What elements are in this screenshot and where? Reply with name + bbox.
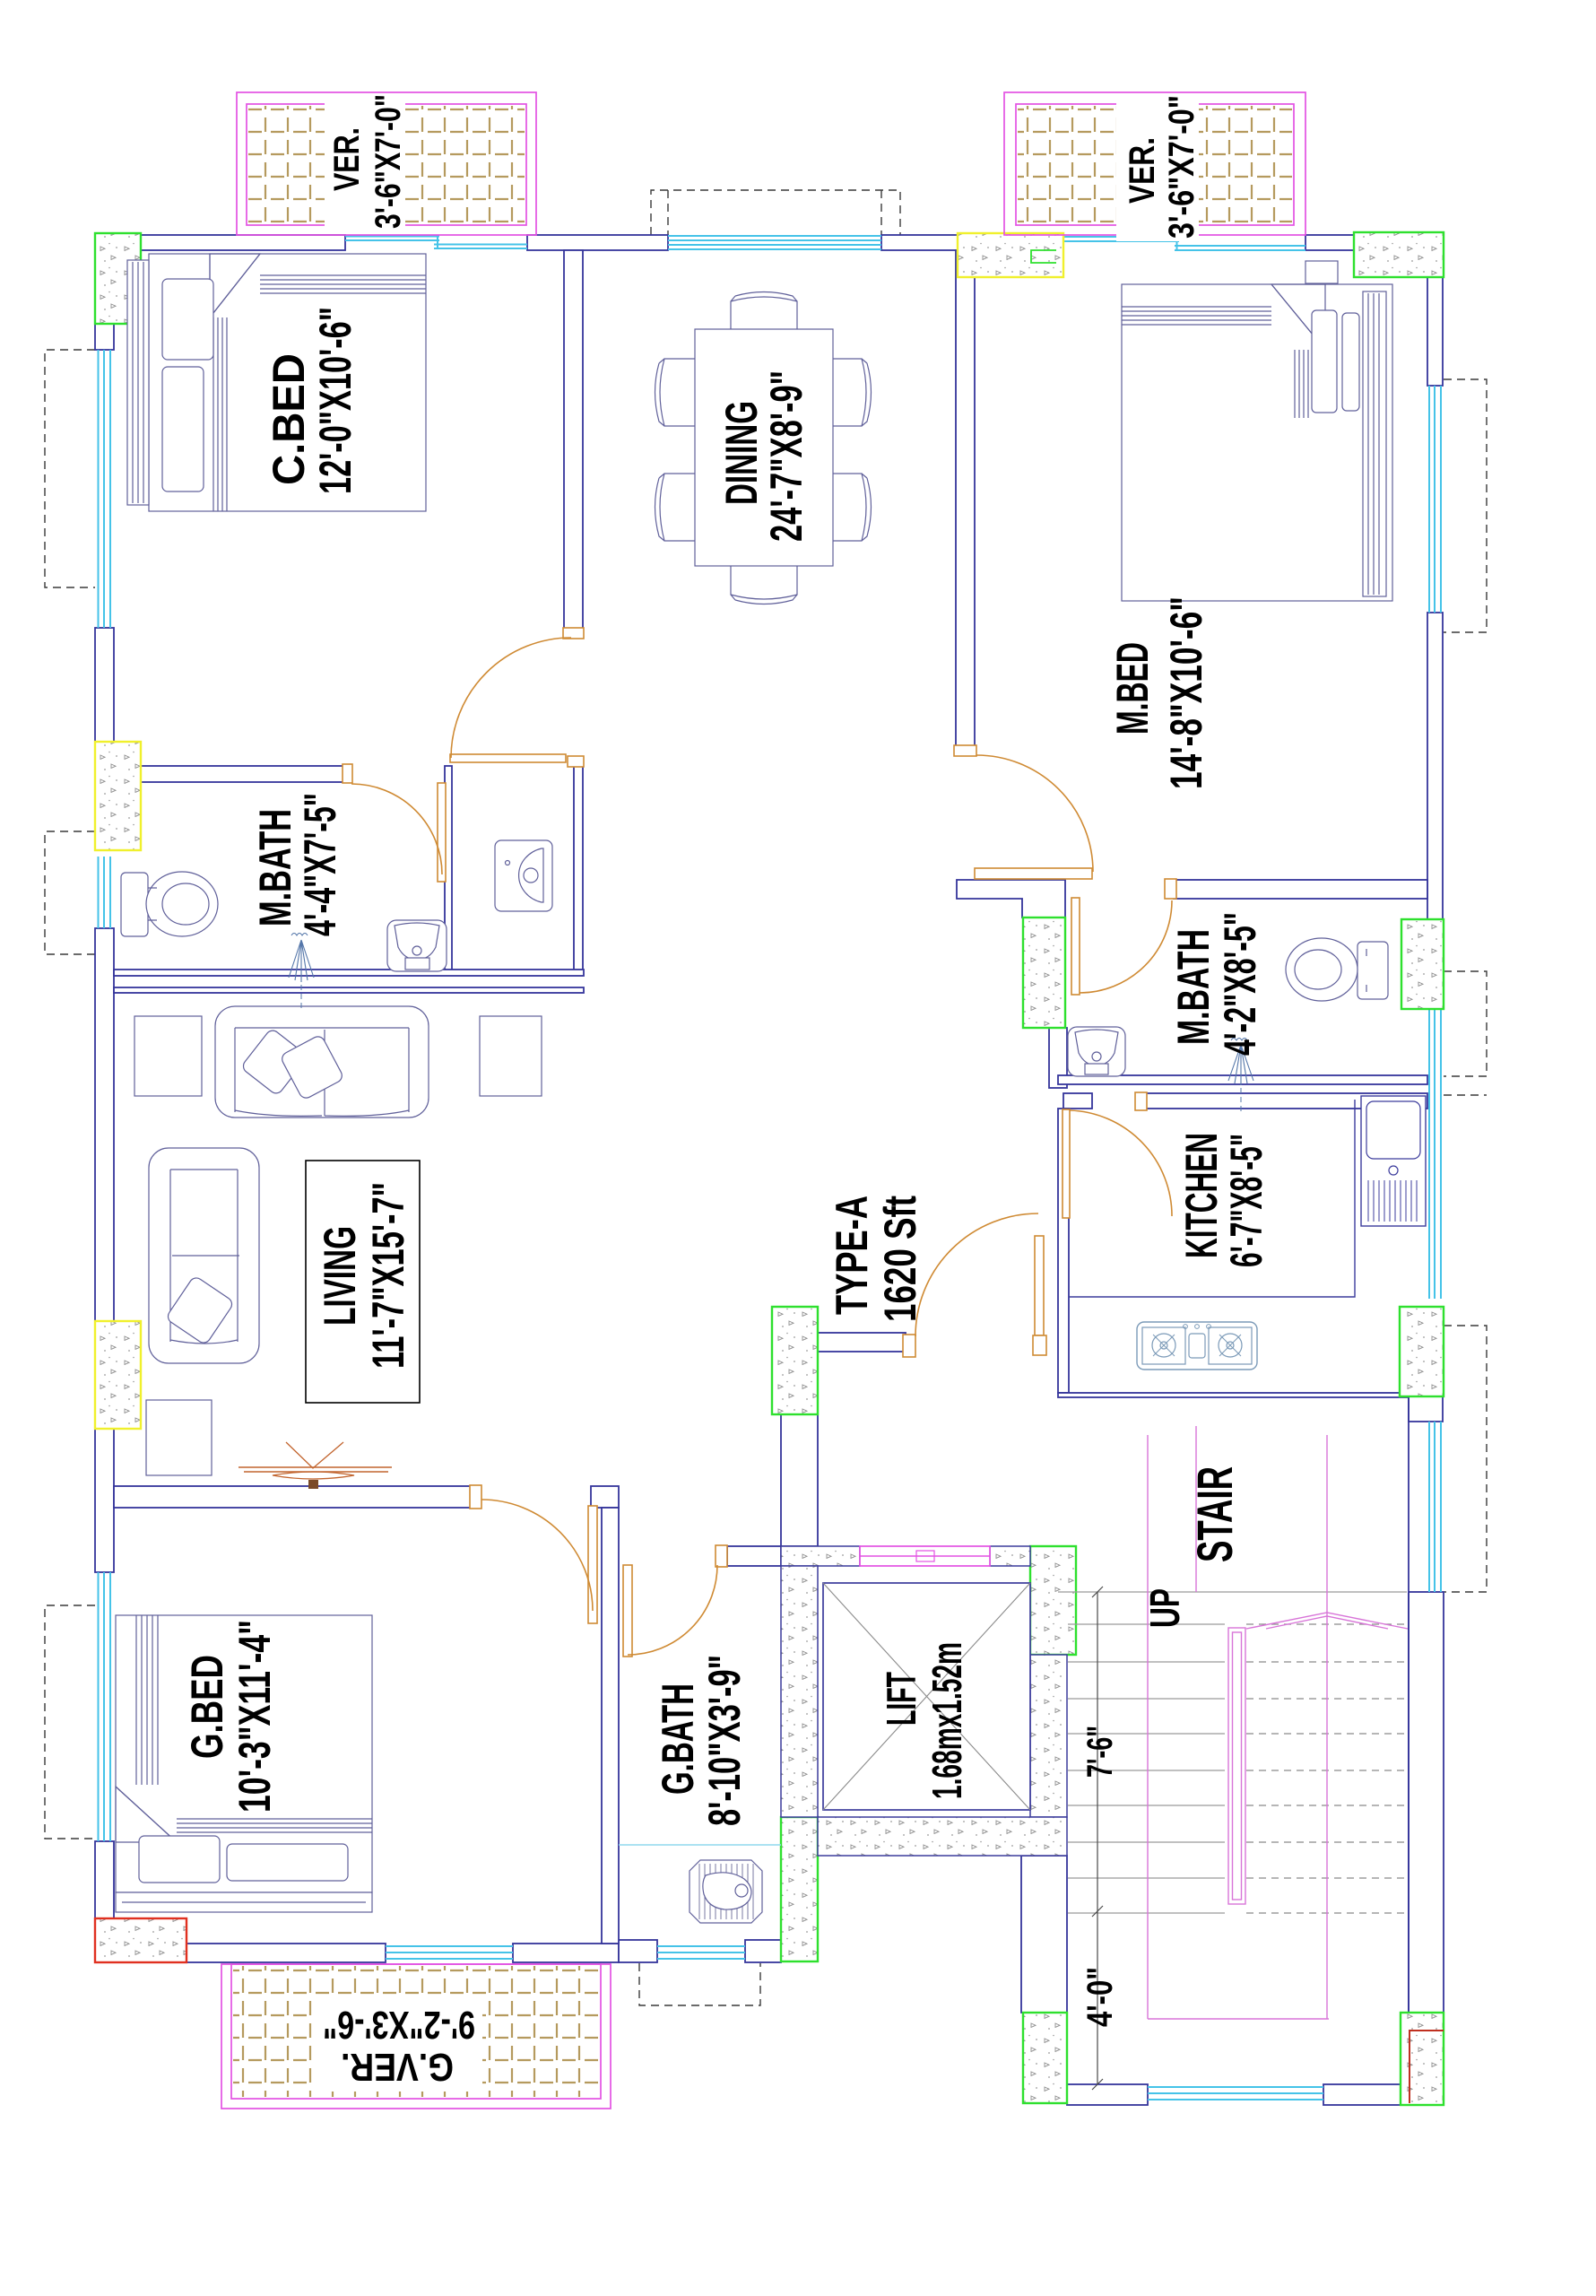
svg-text:3'-6"X7'-0": 3'-6"X7'-0" xyxy=(369,94,408,229)
svg-text:VER.: VER. xyxy=(327,127,367,191)
svg-text:14'-8"X10'-6": 14'-8"X10'-6" xyxy=(1161,596,1211,789)
svg-text:6'-7"X8'-5": 6'-7"X8'-5" xyxy=(1221,1134,1271,1267)
svg-text:STAIR: STAIR xyxy=(1186,1466,1243,1562)
svg-text:DINING: DINING xyxy=(716,401,767,505)
svg-text:7'-6": 7'-6" xyxy=(1080,1726,1120,1778)
svg-text:M.BATH: M.BATH xyxy=(250,809,300,926)
svg-text:LIFT: LIFT xyxy=(878,1672,924,1726)
svg-text:4'-2"X8'-5": 4'-2"X8'-5" xyxy=(1215,912,1265,1056)
svg-text:3'-6"X7'-0": 3'-6"X7'-0" xyxy=(1162,95,1201,239)
svg-text:4'-0": 4'-0" xyxy=(1080,1967,1120,2027)
svg-text:4'-4"X7'-5": 4'-4"X7'-5" xyxy=(295,793,345,936)
svg-text:KITCHEN: KITCHEN xyxy=(1176,1133,1227,1258)
svg-text:8'-10"X3'-9": 8'-10"X3'-9" xyxy=(699,1655,750,1826)
svg-text:24'-7"X8'-9": 24'-7"X8'-9" xyxy=(761,370,811,542)
svg-text:TYPE-A: TYPE-A xyxy=(827,1196,877,1315)
svg-text:10'-3"X11'-4": 10'-3"X11'-4" xyxy=(230,1620,280,1813)
svg-text:VER.: VER. xyxy=(1123,137,1162,204)
svg-text:9'-2"X3'-6": 9'-2"X3'-6" xyxy=(323,2003,475,2047)
svg-text:11'-7"X15'-7": 11'-7"X15'-7" xyxy=(363,1182,413,1369)
svg-text:M.BED: M.BED xyxy=(1107,642,1158,735)
svg-text:M.BATH: M.BATH xyxy=(1168,929,1219,1045)
svg-text:UP: UP xyxy=(1141,1588,1188,1628)
svg-text:G.VER.: G.VER. xyxy=(341,2045,454,2089)
svg-text:G.BED: G.BED xyxy=(182,1655,232,1759)
svg-text:1.68mx1.52m: 1.68mx1.52m xyxy=(924,1642,970,1799)
svg-text:12'-0"X10'-6": 12'-0"X10'-6" xyxy=(310,307,360,494)
svg-text:1620 Sft: 1620 Sft xyxy=(875,1196,925,1322)
svg-text:LIVING: LIVING xyxy=(315,1226,365,1326)
svg-text:C.BED: C.BED xyxy=(264,353,314,485)
svg-text:G.BATH: G.BATH xyxy=(653,1683,703,1795)
